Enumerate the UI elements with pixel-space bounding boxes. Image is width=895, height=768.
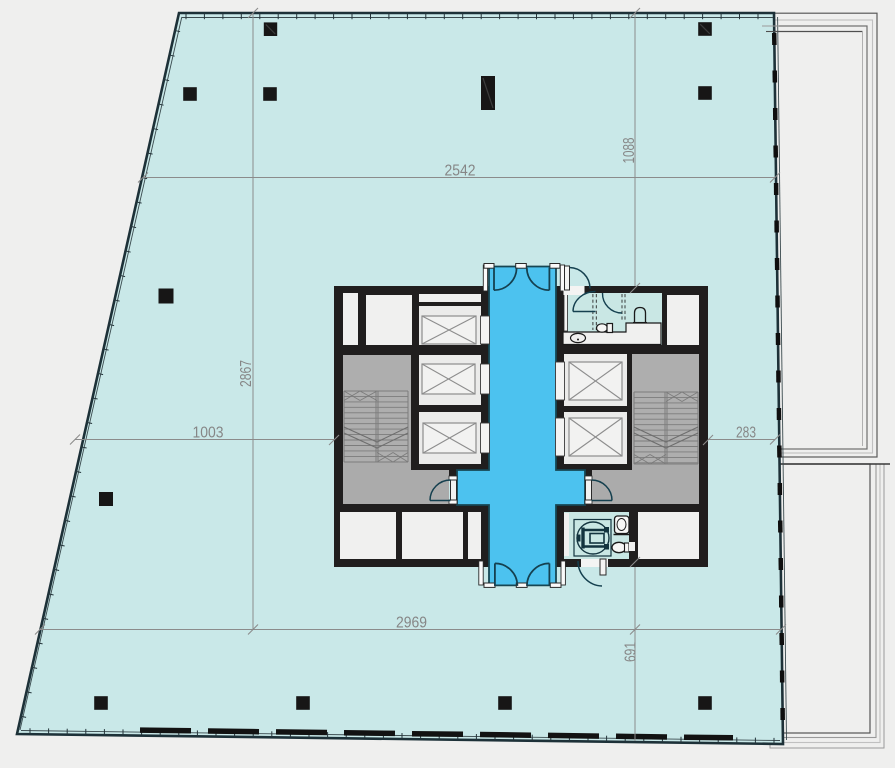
svg-text:2867: 2867: [238, 360, 255, 387]
svg-text:2542: 2542: [445, 163, 476, 180]
svg-text:283: 283: [736, 425, 756, 442]
svg-text:1003: 1003: [193, 425, 224, 442]
svg-text:691: 691: [623, 642, 640, 662]
svg-text:1088: 1088: [621, 137, 638, 163]
svg-text:2969: 2969: [396, 615, 427, 632]
